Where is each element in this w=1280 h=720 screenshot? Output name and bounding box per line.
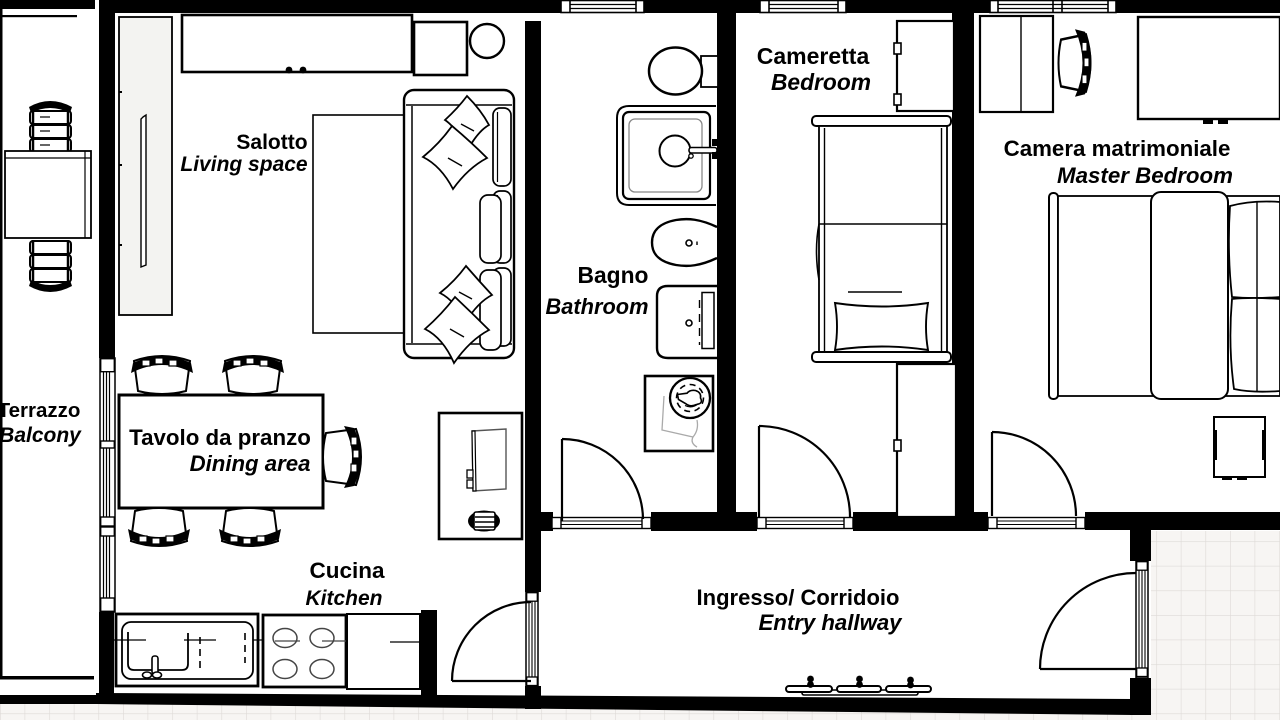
svg-text:Living space: Living space [180, 153, 308, 176]
svg-text:Ingresso/ Corridoio: Ingresso/ Corridoio [697, 585, 900, 610]
svg-text:Terrazzo: Terrazzo [0, 399, 80, 422]
svg-text:Bagno: Bagno [578, 262, 649, 288]
svg-text:Kitchen: Kitchen [305, 587, 382, 610]
svg-text:Balcony: Balcony [0, 424, 82, 447]
svg-text:Camera matrimoniale: Camera matrimoniale [1004, 136, 1231, 161]
svg-text:Salotto: Salotto [236, 131, 307, 154]
svg-text:Dining area: Dining area [190, 451, 311, 476]
svg-text:Bedroom: Bedroom [771, 69, 871, 95]
svg-text:Bathroom: Bathroom [546, 294, 649, 319]
svg-text:Cameretta: Cameretta [757, 43, 870, 69]
svg-text:Entry hallway: Entry hallway [758, 610, 903, 635]
svg-text:Tavolo da pranzo: Tavolo da pranzo [129, 425, 311, 450]
svg-text:Master Bedroom: Master Bedroom [1057, 163, 1233, 188]
svg-text:Cucina: Cucina [309, 558, 385, 583]
